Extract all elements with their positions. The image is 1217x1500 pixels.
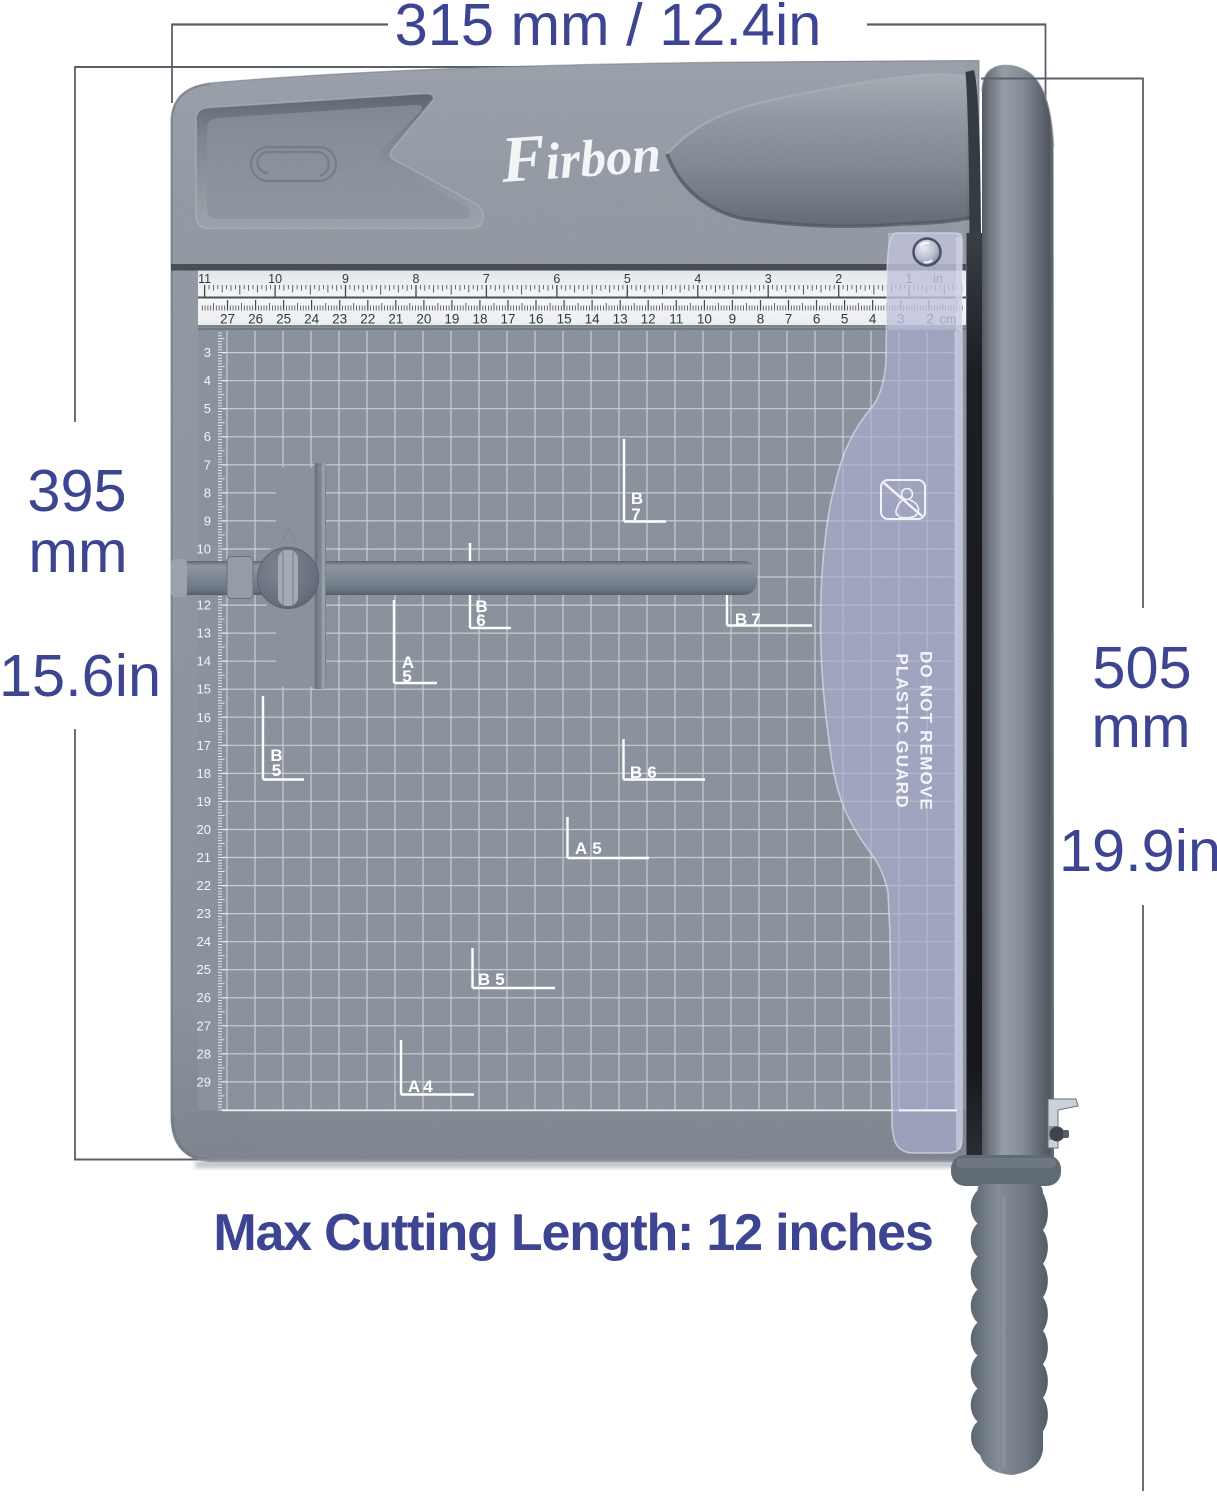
svg-text:mm: mm: [28, 518, 127, 585]
svg-text:15.6in: 15.6in: [0, 642, 161, 709]
svg-text:19.9in: 19.9in: [1059, 817, 1217, 884]
svg-text:Max Cutting Length: 12 inches: Max Cutting Length: 12 inches: [213, 1204, 932, 1262]
svg-text:DO NOT REMOVE: DO NOT REMOVE: [917, 651, 936, 811]
svg-text:505: 505: [1092, 634, 1191, 701]
svg-text:395: 395: [27, 457, 126, 524]
svg-text:mm: mm: [1091, 693, 1190, 760]
svg-text:315 mm / 12.4in: 315 mm / 12.4in: [395, 0, 822, 58]
svg-text:PLASTIC GUARD: PLASTIC GUARD: [893, 653, 912, 808]
